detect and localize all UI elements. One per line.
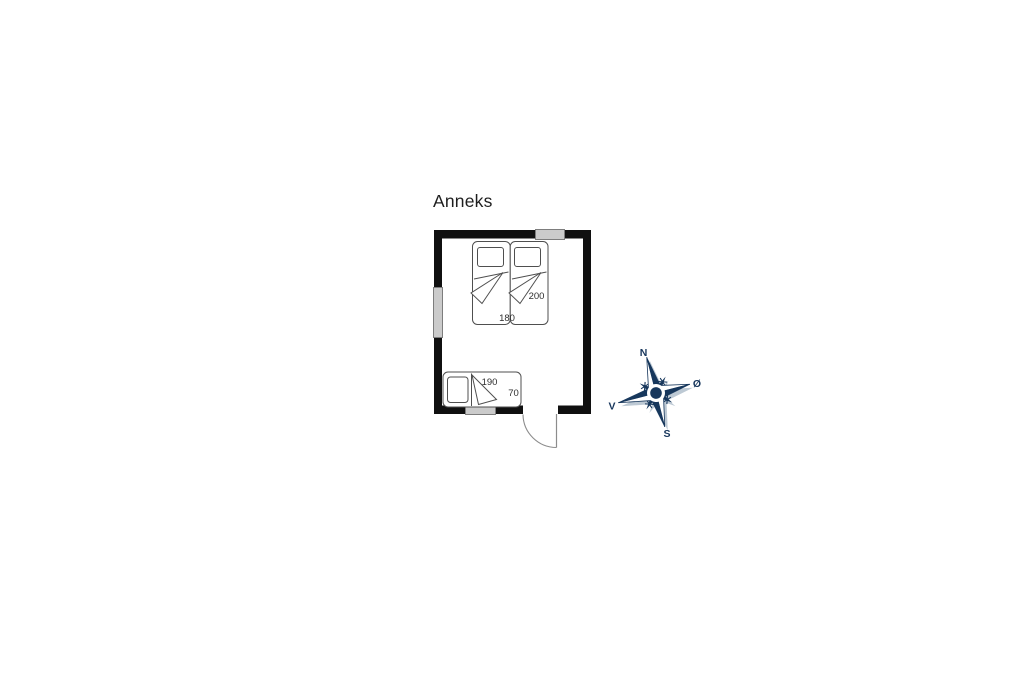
wall-north: [434, 230, 591, 239]
single-bed-pillow: [448, 377, 469, 403]
single-bed-length-label: 190: [482, 377, 498, 388]
compass-label-west: V: [608, 401, 615, 413]
pillow-left: [478, 248, 504, 267]
compass-label-south: S: [663, 428, 670, 440]
floorplan-page: Anneks: [0, 0, 1024, 682]
single-bed-width-label: 70: [508, 388, 519, 399]
compass-rose: N Ø S V: [608, 347, 701, 440]
door-swing-arc: [523, 415, 557, 448]
compass-label-east: Ø: [693, 378, 701, 390]
annex-room: 200 180 190 70: [434, 230, 592, 448]
compass-star: [609, 348, 699, 436]
door-opening: [523, 405, 558, 416]
pillow-right: [515, 248, 541, 267]
window-north: [536, 230, 565, 240]
compass-label-north: N: [640, 347, 648, 359]
window-west: [434, 288, 443, 338]
wall-east: [583, 230, 591, 414]
floor-plan-canvas: 200 180 190 70: [0, 0, 1024, 682]
double-bed-width-label: 180: [499, 313, 515, 324]
double-bed-length-label: 200: [529, 291, 545, 302]
